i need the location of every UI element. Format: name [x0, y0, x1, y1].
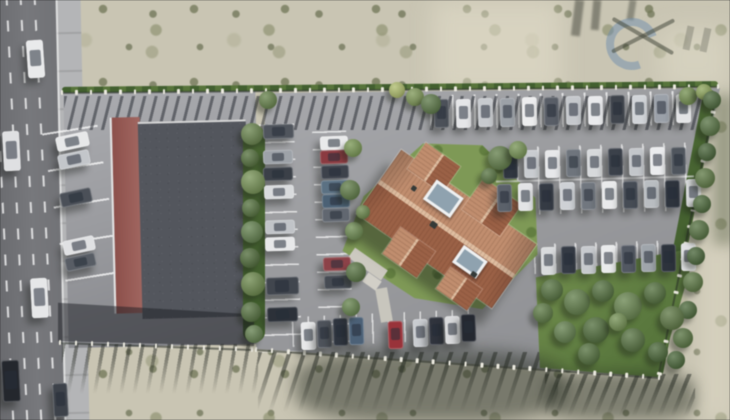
bush	[346, 262, 366, 282]
bush	[356, 205, 370, 219]
bush	[259, 91, 277, 109]
bush	[389, 82, 405, 98]
bush	[342, 298, 360, 316]
bush	[340, 180, 360, 200]
bush	[421, 94, 441, 114]
bush	[687, 247, 705, 265]
bush	[693, 195, 711, 213]
bush	[673, 328, 693, 348]
bush	[648, 342, 668, 362]
bush	[241, 272, 265, 296]
bush	[564, 289, 590, 315]
bush	[609, 313, 627, 331]
bush	[241, 123, 263, 145]
bush	[345, 222, 363, 240]
bush	[245, 325, 263, 343]
bush	[667, 351, 685, 369]
bush	[583, 317, 609, 343]
bush	[240, 248, 260, 268]
bush	[509, 141, 527, 159]
bush	[592, 280, 614, 302]
bush	[695, 168, 715, 188]
bush	[700, 116, 720, 136]
bush	[241, 302, 261, 322]
aerial-site-render	[0, 0, 730, 420]
bush	[541, 279, 563, 301]
bush	[703, 91, 721, 109]
bush	[689, 220, 709, 240]
bush	[241, 149, 259, 167]
bush	[644, 282, 666, 304]
bush	[344, 139, 362, 157]
watermark-mark	[683, 26, 695, 51]
bush	[683, 272, 703, 292]
bush	[621, 328, 645, 352]
watermark-mark	[700, 28, 712, 53]
bush	[481, 168, 497, 184]
bush	[554, 321, 576, 343]
bush	[241, 221, 263, 243]
bush	[660, 306, 684, 330]
bush	[533, 303, 553, 323]
bush	[242, 199, 260, 217]
bush	[578, 343, 600, 365]
logo-watermark	[590, 8, 730, 70]
bush	[698, 143, 716, 161]
bush	[241, 170, 265, 194]
bush	[679, 87, 697, 105]
